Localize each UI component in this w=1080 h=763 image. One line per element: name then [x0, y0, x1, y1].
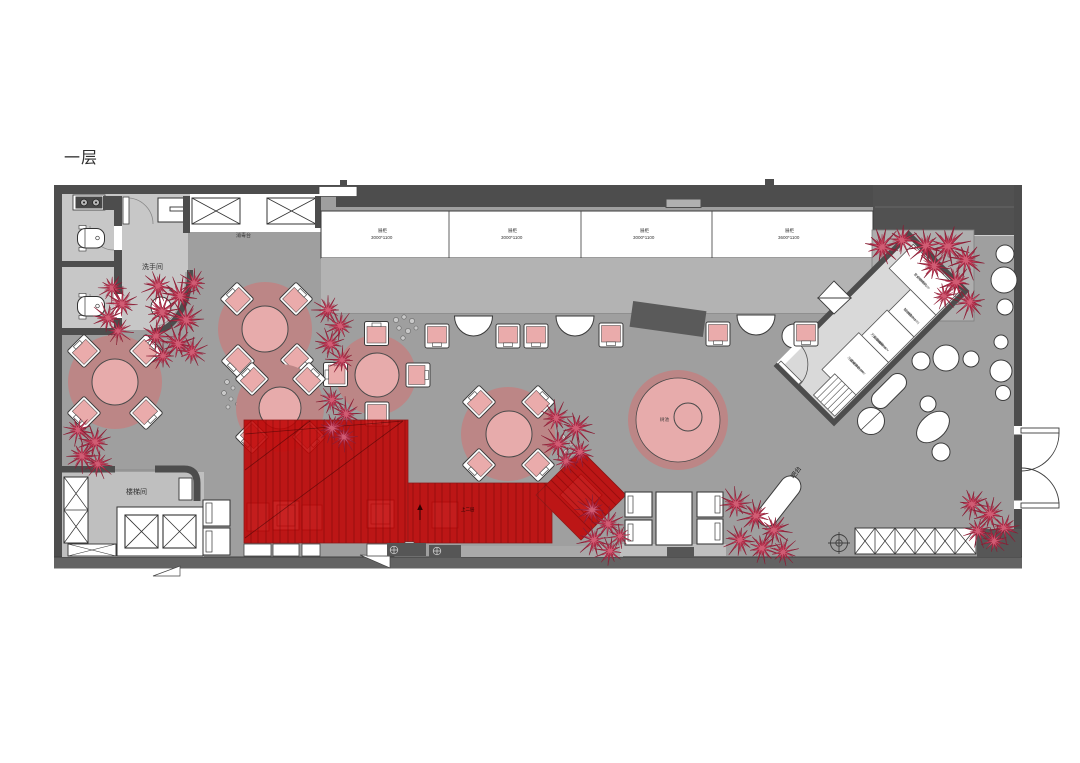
- svg-text:3000*1100: 3000*1100: [501, 235, 523, 240]
- svg-text:展柜: 展柜: [785, 227, 794, 234]
- svg-text:3000*1100: 3000*1100: [633, 235, 655, 240]
- svg-text:展柜: 展柜: [640, 227, 649, 234]
- svg-text:3600*1100: 3600*1100: [778, 235, 800, 240]
- svg-text:3000*1100: 3000*1100: [371, 235, 393, 240]
- svg-text:树池: 树池: [660, 416, 669, 423]
- svg-text:上二层: 上二层: [461, 506, 475, 513]
- svg-text:展柜: 展柜: [378, 227, 387, 234]
- svg-text:楼梯间: 楼梯间: [126, 487, 147, 496]
- svg-text:洗手间: 洗手间: [142, 262, 163, 271]
- svg-text:展柜: 展柜: [508, 227, 517, 234]
- svg-text:一层: 一层: [64, 150, 98, 167]
- svg-text:消毒台: 消毒台: [236, 232, 251, 239]
